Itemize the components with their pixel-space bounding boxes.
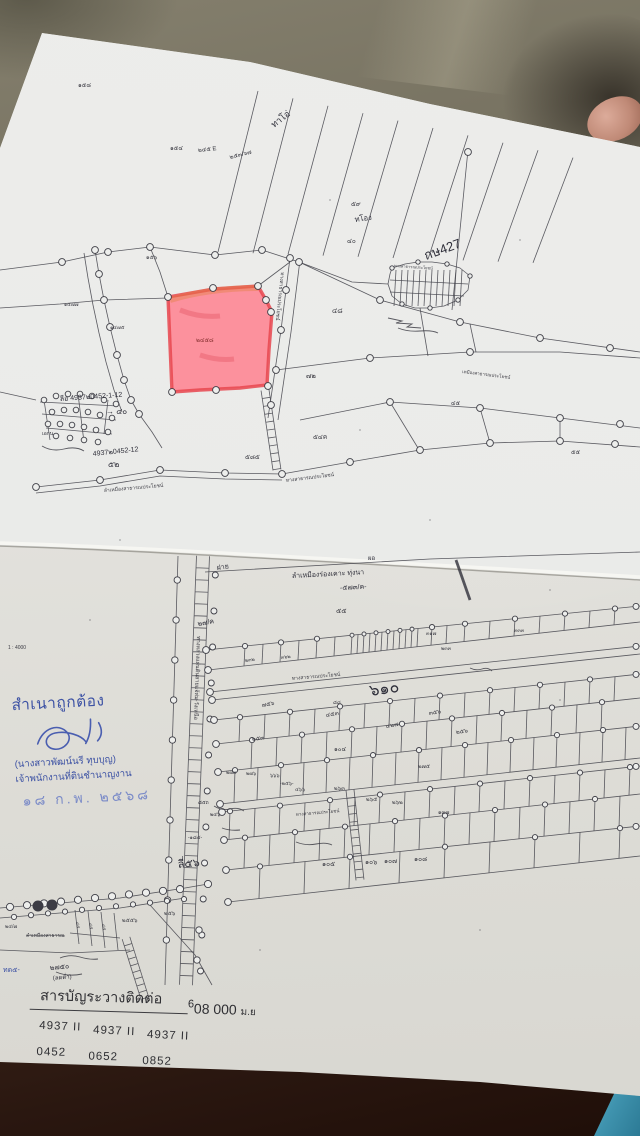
survey-marker bbox=[96, 271, 103, 278]
survey-marker bbox=[633, 643, 639, 649]
survey-marker bbox=[387, 698, 392, 703]
survey-marker bbox=[392, 818, 397, 823]
survey-marker bbox=[633, 671, 639, 677]
map-label: ๔๖๖ bbox=[295, 787, 305, 793]
survey-marker bbox=[386, 630, 390, 634]
map-line bbox=[298, 641, 299, 660]
map-label: ๑๐๕ bbox=[322, 861, 335, 868]
survey-marker bbox=[11, 914, 16, 919]
survey-marker bbox=[416, 747, 421, 752]
survey-marker bbox=[142, 889, 149, 896]
sheet-number: 4937 II bbox=[93, 1024, 136, 1038]
map-line bbox=[395, 753, 396, 785]
map-label: ๓๕๖ bbox=[428, 708, 441, 717]
map-line bbox=[436, 270, 438, 306]
sheet-page: 0652 bbox=[88, 1050, 118, 1063]
survey-marker bbox=[74, 896, 81, 903]
map-line bbox=[519, 807, 520, 838]
survey-marker bbox=[592, 796, 597, 801]
survey-marker bbox=[257, 864, 262, 869]
survey-marker bbox=[101, 297, 108, 304]
survey-marker bbox=[203, 647, 210, 654]
map-label: ๘๘ bbox=[333, 700, 341, 706]
map-line bbox=[387, 632, 388, 650]
map-line bbox=[326, 760, 327, 792]
survey-marker bbox=[198, 968, 204, 974]
map-line bbox=[381, 632, 382, 651]
survey-marker bbox=[427, 787, 432, 792]
map-line bbox=[206, 606, 640, 650]
map-line bbox=[257, 768, 258, 800]
survey-marker bbox=[549, 705, 554, 710]
map-label: ผอ bbox=[368, 556, 376, 562]
survey-marker bbox=[508, 737, 513, 742]
survey-marker bbox=[633, 723, 639, 729]
map-line bbox=[229, 811, 230, 839]
survey-marker bbox=[41, 397, 47, 403]
survey-marker bbox=[410, 627, 414, 631]
survey-marker bbox=[97, 412, 103, 418]
photo-canvas: ๑๕๘๑๕๔๒๔๕ E๒๕๓/๖๗ทาโอ่๕๙ทโอง๔๐กษ427ทางสา… bbox=[0, 0, 640, 1136]
survey-marker bbox=[416, 260, 420, 264]
map-label: ๑๐๖ bbox=[365, 859, 377, 866]
map-label: ๒๖๒ bbox=[392, 800, 403, 806]
survey-marker bbox=[165, 294, 172, 301]
survey-marker bbox=[157, 467, 164, 474]
map-line bbox=[539, 685, 540, 709]
map-line bbox=[569, 802, 570, 834]
survey-marker bbox=[292, 830, 297, 835]
survey-marker bbox=[59, 259, 66, 266]
survey-marker bbox=[217, 801, 224, 808]
survey-marker bbox=[53, 433, 59, 439]
survey-marker bbox=[467, 349, 474, 356]
map-line bbox=[470, 324, 476, 352]
survey-marker bbox=[204, 788, 210, 794]
paper-speck bbox=[549, 589, 551, 591]
survey-marker bbox=[487, 440, 494, 447]
coordinate-unit: ม.ย bbox=[240, 1007, 256, 1018]
survey-marker bbox=[347, 854, 352, 859]
map-line bbox=[564, 682, 565, 706]
map-line bbox=[419, 818, 420, 849]
map-line bbox=[262, 644, 263, 664]
map-label: -๑๘๔- bbox=[188, 835, 202, 841]
survey-marker bbox=[159, 887, 166, 894]
map-line bbox=[372, 755, 373, 787]
survey-marker bbox=[174, 577, 180, 583]
survey-marker bbox=[633, 763, 639, 769]
survey-marker bbox=[67, 435, 73, 441]
map-line bbox=[304, 803, 305, 831]
map-line bbox=[594, 799, 595, 831]
map-label: ๒๗๕ bbox=[418, 764, 430, 770]
map-line bbox=[614, 677, 615, 701]
map-line bbox=[259, 866, 260, 898]
map-line bbox=[469, 813, 470, 844]
survey-marker bbox=[242, 643, 247, 648]
survey-marker bbox=[105, 429, 111, 435]
survey-marker bbox=[57, 421, 63, 427]
map-line bbox=[510, 740, 511, 772]
map-line bbox=[218, 91, 258, 252]
survey-marker bbox=[225, 899, 232, 906]
map-label: → ๔๐ bbox=[106, 407, 127, 416]
map-line bbox=[401, 724, 402, 752]
survey-marker bbox=[633, 823, 639, 829]
survey-marker bbox=[327, 798, 332, 803]
map-line bbox=[604, 770, 605, 798]
survey-marker bbox=[374, 631, 378, 635]
map-line bbox=[529, 778, 530, 806]
map-line bbox=[358, 121, 398, 257]
map-label: ลี่๕๖ bbox=[177, 854, 201, 871]
map-label: ๒๗/ค bbox=[197, 618, 215, 628]
survey-marker bbox=[97, 477, 104, 484]
map-line bbox=[394, 270, 396, 306]
survey-marker bbox=[429, 624, 434, 629]
survey-marker bbox=[349, 727, 354, 732]
map-line bbox=[504, 781, 505, 809]
map-line bbox=[602, 730, 603, 762]
map-line bbox=[429, 789, 430, 817]
map-line bbox=[394, 821, 395, 852]
survey-marker bbox=[49, 409, 55, 415]
map-line bbox=[0, 950, 130, 953]
map-line bbox=[629, 767, 630, 795]
map-label: ๒๓๒ bbox=[245, 657, 256, 664]
map-line bbox=[625, 728, 626, 760]
map-line bbox=[619, 796, 620, 828]
survey-marker bbox=[587, 677, 592, 682]
map-line bbox=[288, 106, 328, 255]
map-line bbox=[533, 158, 573, 263]
sheet-page: 0452 bbox=[36, 1046, 66, 1059]
map-label: ทางสาธารณประโยชน์ bbox=[394, 263, 433, 271]
survey-marker bbox=[296, 259, 303, 266]
map-line bbox=[476, 716, 477, 744]
map-line bbox=[576, 705, 577, 733]
map-line bbox=[489, 621, 490, 638]
map-label: -๕๗๓/ค- bbox=[340, 584, 368, 592]
survey-marker bbox=[265, 383, 272, 390]
map-line bbox=[424, 270, 426, 306]
survey-marker bbox=[255, 283, 262, 290]
map-line bbox=[393, 128, 433, 258]
survey-marker bbox=[33, 484, 40, 491]
survey-marker bbox=[273, 367, 280, 374]
survey-marker bbox=[181, 897, 186, 902]
paper-speck bbox=[429, 519, 431, 521]
handwriting-scribble bbox=[222, 828, 240, 830]
paper-speck bbox=[359, 429, 361, 431]
survey-marker bbox=[342, 824, 347, 829]
survey-marker bbox=[277, 803, 282, 808]
map-label: ๑๕๘ bbox=[78, 82, 91, 89]
map-line bbox=[389, 701, 390, 725]
signature bbox=[28, 710, 120, 759]
map-line bbox=[579, 773, 580, 801]
map-label: 4937๒0452-12 bbox=[92, 446, 138, 458]
map-label: ทางสาธารณประโยชน์ bbox=[296, 807, 340, 817]
survey-marker bbox=[387, 399, 394, 406]
survey-marker bbox=[557, 438, 564, 445]
map-label: ทางสาธารณประโยชน์ bbox=[285, 471, 335, 484]
survey-marker bbox=[203, 824, 209, 830]
map-line bbox=[351, 635, 352, 654]
map-label: ๒๔๕ E bbox=[197, 145, 216, 154]
survey-marker bbox=[398, 628, 402, 632]
survey-marker bbox=[113, 904, 118, 909]
map-label: ๔๕๓ bbox=[325, 710, 339, 719]
survey-marker bbox=[370, 753, 375, 758]
map-line bbox=[376, 727, 377, 755]
map-line bbox=[344, 827, 345, 858]
survey-marker bbox=[92, 247, 99, 254]
map-line bbox=[393, 631, 394, 649]
scale-note: 1 : 4000 bbox=[8, 645, 26, 651]
map-line bbox=[556, 735, 557, 767]
survey-marker bbox=[114, 352, 121, 359]
map-label: ๑๐๔ bbox=[334, 747, 346, 753]
map-line bbox=[406, 270, 408, 306]
survey-marker bbox=[279, 471, 286, 478]
map-line bbox=[276, 352, 640, 370]
survey-marker bbox=[222, 470, 229, 477]
map-line bbox=[418, 270, 420, 306]
survey-marker bbox=[91, 894, 98, 901]
survey-marker bbox=[417, 447, 424, 454]
map-line bbox=[601, 702, 602, 730]
survey-marker bbox=[57, 898, 64, 905]
map-label: ๑๐๗ bbox=[384, 858, 397, 865]
survey-marker bbox=[599, 700, 604, 705]
survey-marker bbox=[209, 697, 216, 704]
map-label: ๑๕๖ bbox=[146, 255, 158, 261]
map-label: ๔๐ bbox=[347, 238, 356, 245]
map-label: ๗๒ bbox=[306, 373, 316, 380]
survey-marker bbox=[542, 802, 547, 807]
map-label: ๒๕๖ bbox=[455, 727, 468, 736]
map-label: ๒๖๕ bbox=[366, 797, 377, 803]
survey-marker bbox=[607, 345, 614, 352]
paper-speck bbox=[329, 199, 331, 201]
map-line bbox=[463, 143, 503, 261]
map-line bbox=[464, 745, 465, 777]
survey-marker bbox=[213, 387, 220, 394]
survey-marker bbox=[194, 957, 200, 963]
map-line bbox=[533, 738, 534, 770]
map-label: ๔๕ bbox=[75, 921, 81, 929]
survey-marker bbox=[445, 262, 449, 266]
map-line bbox=[494, 810, 495, 841]
map-line bbox=[390, 402, 418, 448]
map-line bbox=[400, 270, 402, 306]
survey-marker bbox=[23, 902, 30, 909]
survey-marker bbox=[223, 867, 230, 874]
survey-marker-filled bbox=[47, 900, 57, 910]
map-label: ๕๔ค bbox=[313, 434, 327, 441]
survey-marker bbox=[45, 911, 50, 916]
survey-marker bbox=[136, 411, 143, 418]
survey-marker bbox=[627, 765, 632, 770]
map-line bbox=[314, 709, 315, 733]
map-line bbox=[319, 829, 320, 860]
survey-marker bbox=[314, 636, 319, 641]
survey-marker bbox=[113, 401, 119, 407]
map-line bbox=[351, 729, 352, 757]
survey-marker bbox=[215, 769, 222, 776]
survey-marker bbox=[512, 616, 517, 621]
map-line bbox=[357, 635, 358, 654]
survey-marker bbox=[278, 763, 283, 768]
map-line bbox=[0, 392, 36, 400]
map-line bbox=[430, 270, 432, 306]
map-line bbox=[479, 784, 480, 812]
survey-marker bbox=[176, 886, 183, 893]
paper-speck bbox=[479, 929, 481, 931]
map-label: ๑๐๘ bbox=[414, 856, 427, 863]
map-line bbox=[539, 616, 540, 633]
paper-speck bbox=[119, 539, 121, 541]
survey-marker bbox=[81, 424, 87, 430]
survey-marker bbox=[147, 244, 154, 251]
survey-marker bbox=[324, 758, 329, 763]
cadastral-map-drawing: ๑๕๘๑๕๔๒๔๕ E๒๕๓/๖๗ทาโอ่๕๙ทโอง๔๐กษ427ทางสา… bbox=[0, 0, 640, 1136]
survey-marker bbox=[428, 306, 432, 310]
survey-marker bbox=[287, 709, 292, 714]
map-line bbox=[334, 637, 335, 656]
map-line bbox=[224, 794, 640, 840]
map-line bbox=[300, 402, 640, 428]
sheet-page: 0852 bbox=[142, 1055, 172, 1068]
handwriting-scribble bbox=[398, 328, 438, 333]
paper-content: ๑๕๘๑๕๔๒๔๕ E๒๕๓/๖๗ทาโอ่๕๙ทโอง๔๐กษ427ทางสา… bbox=[0, 0, 640, 1136]
survey-marker bbox=[442, 844, 447, 849]
survey-marker bbox=[377, 792, 382, 797]
map-label: ๓๓๓ bbox=[514, 628, 525, 634]
survey-marker bbox=[237, 715, 242, 720]
map-line bbox=[551, 708, 552, 736]
sheet-coordinate: 608 000 ม.ย bbox=[188, 998, 257, 1020]
survey-marker bbox=[96, 905, 101, 910]
survey-marker bbox=[492, 807, 497, 812]
survey-marker bbox=[347, 459, 354, 466]
map-line bbox=[279, 806, 280, 834]
map-line bbox=[264, 714, 265, 738]
map-label: ทโอง bbox=[354, 213, 373, 224]
map-line bbox=[464, 693, 465, 717]
map-label: ๒๔๕๘ bbox=[196, 337, 214, 344]
map-line bbox=[411, 629, 412, 647]
map-line bbox=[214, 674, 640, 720]
paper-speck bbox=[259, 949, 261, 951]
adjoining-sheets-title: สารบัญระวางติดต่อ bbox=[30, 984, 189, 1014]
survey-marker bbox=[362, 632, 366, 636]
survey-marker bbox=[449, 716, 454, 721]
survey-marker bbox=[532, 835, 537, 840]
survey-marker bbox=[487, 688, 492, 693]
survey-marker bbox=[207, 689, 214, 696]
survey-marker bbox=[367, 355, 374, 362]
sheet-number: 4937 II bbox=[147, 1029, 190, 1043]
map-label: ๕๒ bbox=[108, 460, 119, 469]
survey-marker bbox=[62, 909, 67, 914]
survey-marker bbox=[28, 913, 33, 918]
map-label: ๒๕๕๖ bbox=[122, 918, 138, 924]
map-line bbox=[526, 710, 527, 738]
map-line bbox=[404, 792, 405, 820]
map-line bbox=[379, 795, 380, 823]
map-line bbox=[489, 690, 490, 714]
survey-marker bbox=[164, 898, 169, 903]
survey-marker bbox=[166, 857, 172, 863]
survey-marker bbox=[210, 285, 217, 292]
survey-marker bbox=[350, 633, 354, 637]
paper-speck bbox=[89, 619, 91, 621]
map-line bbox=[417, 629, 418, 647]
survey-marker bbox=[169, 389, 176, 396]
map-line bbox=[299, 262, 388, 284]
map-line bbox=[369, 824, 370, 855]
survey-marker bbox=[130, 902, 135, 907]
map-line bbox=[251, 740, 252, 768]
map-line bbox=[452, 150, 468, 310]
map-label: -๒๕๖- bbox=[280, 781, 294, 787]
survey-marker bbox=[81, 437, 87, 443]
map-line bbox=[554, 775, 555, 803]
survey-marker bbox=[377, 297, 384, 304]
survey-marker bbox=[61, 407, 67, 413]
map-line bbox=[446, 626, 447, 644]
map-label: ๕๕ bbox=[571, 449, 581, 456]
map-line bbox=[239, 717, 240, 741]
survey-marker bbox=[242, 835, 247, 840]
survey-marker bbox=[278, 640, 283, 645]
map-label: ๒๗๕๐ bbox=[50, 963, 70, 972]
map-label: เหมืองสาธารณประโยชน์ bbox=[462, 368, 511, 380]
survey-marker bbox=[211, 608, 217, 614]
map-line bbox=[579, 733, 580, 765]
map-line bbox=[444, 816, 445, 847]
survey-marker bbox=[468, 274, 472, 278]
survey-marker bbox=[554, 732, 559, 737]
map-label: ๒๔๖ bbox=[210, 812, 220, 818]
map-line bbox=[489, 842, 490, 873]
map-label: ๖๖๖ bbox=[270, 773, 280, 779]
handwriting-scribble bbox=[296, 842, 332, 845]
map-label: ๘๕ถ bbox=[198, 800, 209, 806]
map-label: ๒๗๓ bbox=[226, 770, 237, 776]
map-label: ๒๕๓ bbox=[251, 734, 264, 743]
survey-marker bbox=[109, 415, 115, 421]
survey-marker bbox=[299, 732, 304, 737]
survey-marker bbox=[172, 657, 178, 663]
map-line bbox=[442, 270, 444, 306]
map-line bbox=[0, 298, 168, 308]
survey-marker bbox=[400, 302, 404, 306]
survey-marker bbox=[202, 860, 208, 866]
map-label: ๔๘ bbox=[332, 308, 343, 315]
map-line bbox=[304, 862, 305, 894]
map-label: ๕๘๕ bbox=[245, 454, 260, 461]
map-label: ๒๓๓ bbox=[441, 646, 452, 652]
map-line bbox=[369, 633, 370, 652]
survey-marker bbox=[263, 297, 270, 304]
signature-stroke bbox=[37, 719, 103, 751]
map-line bbox=[244, 838, 245, 868]
map-line bbox=[326, 732, 327, 760]
